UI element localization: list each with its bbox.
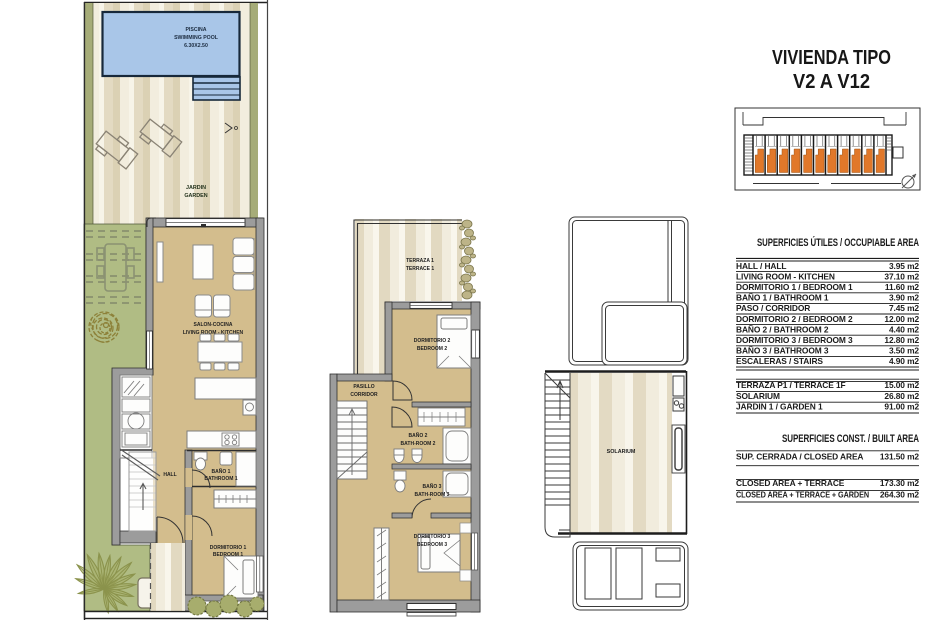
- svg-text:DORMITORIO 3: DORMITORIO 3: [414, 534, 451, 540]
- svg-text:VIVIENDA TIPO: VIVIENDA TIPO: [772, 47, 891, 69]
- svg-text:BAÑO 3 / BATHROOM 3: BAÑO 3 / BATHROOM 3: [736, 346, 829, 356]
- svg-text:BAÑO 3: BAÑO 3: [423, 483, 442, 490]
- svg-text:BEDROOM 3: BEDROOM 3: [417, 542, 448, 548]
- svg-text:3.95 m2: 3.95 m2: [889, 261, 919, 271]
- svg-text:91.00 m2: 91.00 m2: [884, 402, 919, 412]
- svg-text:BAÑO 2 / BATHROOM 2: BAÑO 2 / BATHROOM 2: [736, 324, 829, 334]
- svg-text:JARDIN 1 / GARDEN 1: JARDIN 1 / GARDEN 1: [736, 402, 823, 412]
- svg-text:BEDROOM 1: BEDROOM 1: [213, 552, 244, 558]
- svg-text:TERRAZA P1 / TERRACE 1F: TERRAZA P1 / TERRACE 1F: [736, 380, 846, 390]
- svg-text:BATHROOM 1: BATHROOM 1: [204, 476, 237, 482]
- svg-text:TERRACE 1: TERRACE 1: [406, 266, 435, 272]
- svg-text:SUP. CERRADA / CLOSED AREA: SUP. CERRADA / CLOSED AREA: [736, 452, 863, 462]
- svg-text:DORMITORIO 1: DORMITORIO 1: [210, 545, 247, 551]
- svg-text:3.50 m2: 3.50 m2: [889, 346, 919, 356]
- svg-text:DORMITORIO 2: DORMITORIO 2: [414, 338, 451, 344]
- svg-text:15.00 m2: 15.00 m2: [884, 380, 919, 390]
- svg-text:V2 A V12: V2 A V12: [793, 71, 870, 93]
- svg-text:SOLARIUM: SOLARIUM: [607, 449, 636, 455]
- svg-text:BAÑO 2: BAÑO 2: [409, 432, 428, 439]
- svg-text:TERRAZA 1: TERRAZA 1: [406, 258, 434, 264]
- svg-text:BAÑO 1: BAÑO 1: [212, 468, 231, 475]
- svg-text:PISCINA: PISCINA: [185, 27, 206, 33]
- svg-text:PASO / CORRIDOR: PASO / CORRIDOR: [736, 303, 810, 313]
- svg-text:SOLARIUM: SOLARIUM: [736, 391, 780, 401]
- svg-text:DORMITORIO 1 / BEDROOM 1: DORMITORIO 1 / BEDROOM 1: [736, 282, 853, 292]
- svg-text:12.00 m2: 12.00 m2: [884, 314, 919, 324]
- svg-text:BAÑO 1 / BATHROOM 1: BAÑO 1 / BATHROOM 1: [736, 293, 829, 303]
- svg-text:BATH-ROOM 2: BATH-ROOM 2: [401, 441, 436, 447]
- svg-text:3.90 m2: 3.90 m2: [889, 293, 919, 303]
- svg-text:264.30 m2: 264.30 m2: [880, 489, 920, 499]
- svg-text:CORRIDOR: CORRIDOR: [350, 392, 378, 398]
- svg-text:CLOSED AREA + TERRACE + GARDEN: CLOSED AREA + TERRACE + GARDEN: [736, 489, 869, 499]
- svg-text:CLOSED AREA + TERRACE: CLOSED AREA + TERRACE: [736, 478, 845, 488]
- svg-text:BEDROOM 2: BEDROOM 2: [417, 346, 448, 352]
- svg-text:ESCALERAS / STAIRS: ESCALERAS / STAIRS: [736, 356, 823, 366]
- svg-text:4.40 m2: 4.40 m2: [889, 324, 919, 334]
- svg-text:PASILLO: PASILLO: [353, 384, 374, 390]
- svg-text:LIVING ROOM - KITCHEN: LIVING ROOM - KITCHEN: [736, 271, 835, 281]
- svg-text:DORMITORIO 3 / BEDROOM 3: DORMITORIO 3 / BEDROOM 3: [736, 335, 853, 345]
- svg-text:131.50 m2: 131.50 m2: [880, 452, 920, 462]
- svg-text:6.30X2.50: 6.30X2.50: [184, 43, 208, 49]
- svg-text:SUPERFICIES ÚTILES / OCCUPIABL: SUPERFICIES ÚTILES / OCCUPIABLE AREA: [757, 236, 919, 249]
- svg-text:JARDIN: JARDIN: [186, 185, 206, 191]
- svg-text:GARDEN: GARDEN: [184, 193, 207, 199]
- svg-text:37.10 m2: 37.10 m2: [884, 271, 919, 281]
- svg-text:SWIMMING POOL: SWIMMING POOL: [174, 35, 219, 41]
- svg-text:HALL / HALL: HALL / HALL: [736, 261, 786, 271]
- svg-text:12.80 m2: 12.80 m2: [884, 335, 919, 345]
- svg-text:26.80 m2: 26.80 m2: [884, 391, 919, 401]
- svg-text:11.60 m2: 11.60 m2: [885, 282, 920, 292]
- svg-text:HALL: HALL: [163, 472, 176, 478]
- svg-text:4.90 m2: 4.90 m2: [889, 356, 919, 366]
- svg-text:173.30 m2: 173.30 m2: [880, 478, 920, 488]
- svg-text:SUPERFICIES CONST. / BUILT AR: SUPERFICIES CONST. / BUILT AREA: [782, 433, 919, 445]
- svg-text:DORMITORIO 2 / BEDROOM 2: DORMITORIO 2 / BEDROOM 2: [736, 314, 853, 324]
- svg-text:7.45 m2: 7.45 m2: [889, 303, 919, 313]
- svg-text:BATH-ROOM 3: BATH-ROOM 3: [415, 492, 450, 498]
- svg-text:SALON-COCINA: SALON-COCINA: [194, 322, 233, 328]
